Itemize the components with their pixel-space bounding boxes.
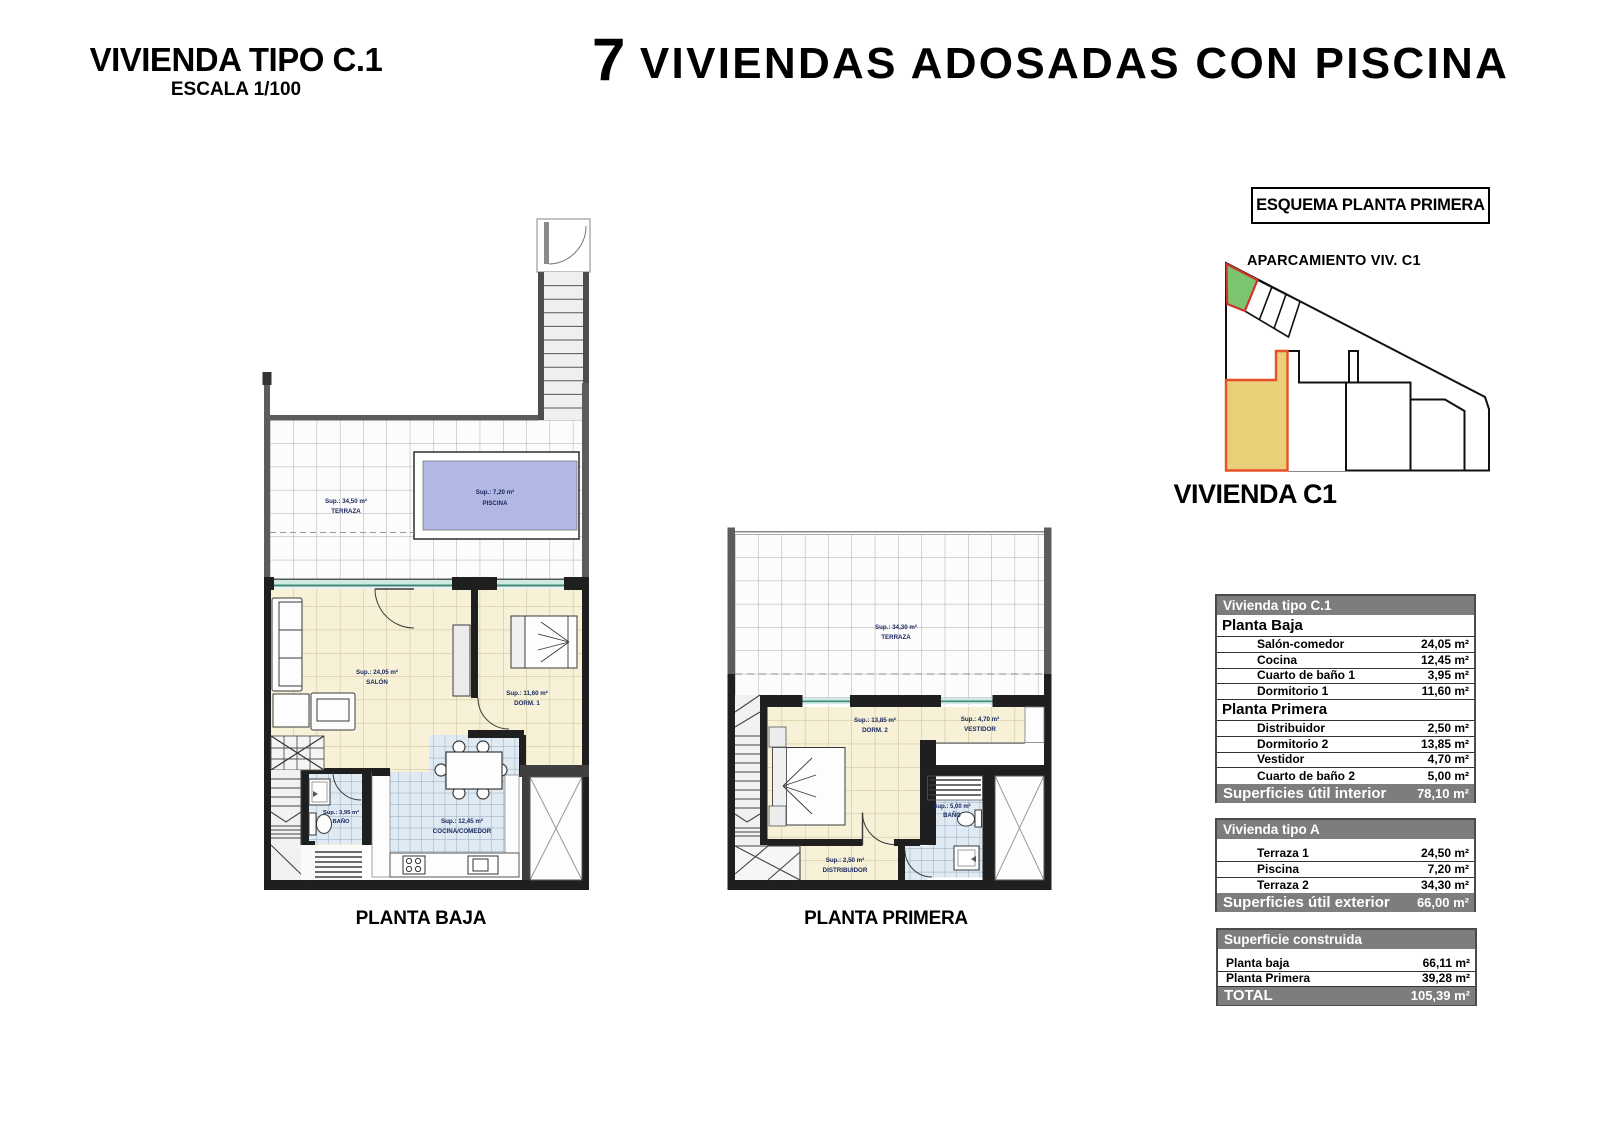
svg-text:TERRAZA: TERRAZA [881, 634, 911, 641]
svg-text:Sup.: 34,50 m²: Sup.: 34,50 m² [325, 498, 367, 505]
svg-text:Sup.: 11,60 m²: Sup.: 11,60 m² [506, 690, 548, 697]
svg-text:BAÑO: BAÑO [943, 812, 961, 819]
svg-text:Sup.: 5,00 m²: Sup.: 5,00 m² [933, 803, 970, 810]
svg-text:Sup.: 12,45 m²: Sup.: 12,45 m² [441, 818, 483, 825]
svg-text:Sup.: 7,20 m²: Sup.: 7,20 m² [476, 489, 515, 496]
svg-text:BAÑO: BAÑO [332, 818, 350, 825]
svg-text:SALÓN: SALÓN [366, 678, 388, 686]
svg-text:Sup.: 13,85 m²: Sup.: 13,85 m² [854, 717, 896, 724]
svg-text:Sup.: 4,70 m²: Sup.: 4,70 m² [961, 716, 1000, 723]
svg-text:PISCINA: PISCINA [482, 500, 508, 507]
svg-text:Sup.: 24,05 m²: Sup.: 24,05 m² [356, 669, 398, 676]
svg-text:TERRAZA: TERRAZA [331, 508, 361, 515]
svg-text:Sup.: 3,95 m²: Sup.: 3,95 m² [323, 809, 359, 816]
svg-text:DORM. 1: DORM. 1 [514, 700, 540, 707]
svg-text:Sup.: 34,30 m²: Sup.: 34,30 m² [875, 624, 917, 631]
svg-text:DORM. 2: DORM. 2 [862, 727, 888, 734]
svg-text:Sup.: 2,50 m²: Sup.: 2,50 m² [826, 857, 865, 864]
svg-text:DISTRIBUIDOR: DISTRIBUIDOR [823, 867, 868, 874]
svg-text:COCINA/COMEDOR: COCINA/COMEDOR [433, 828, 492, 835]
svg-text:VESTIDOR: VESTIDOR [964, 726, 996, 733]
